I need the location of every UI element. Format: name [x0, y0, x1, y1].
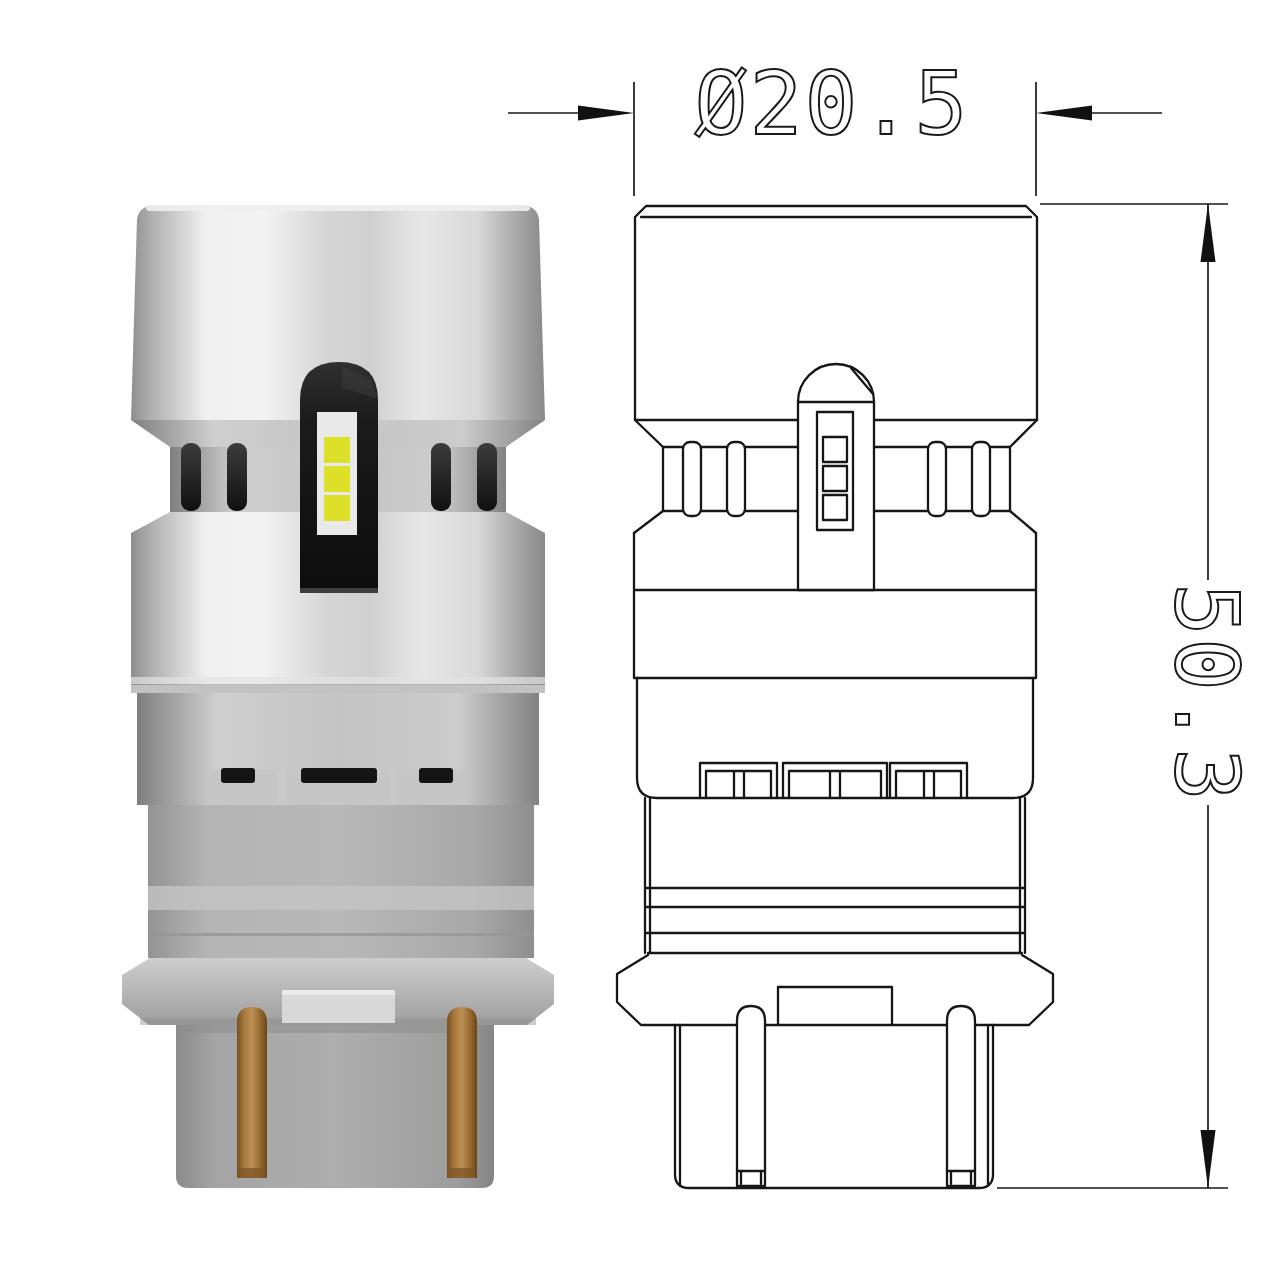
mid-seam-shadow — [131, 684, 545, 693]
drawing-flange-notch — [778, 987, 892, 1025]
mid-seam-highlight — [131, 677, 545, 684]
drawing-boss — [928, 442, 946, 516]
notch-slot — [221, 768, 255, 783]
bulb-technical-drawing — [617, 206, 1053, 1188]
copper-contact-pin — [237, 1007, 267, 1178]
height-label: 50.3 — [1155, 583, 1258, 803]
pin-foot-step — [239, 1168, 265, 1178]
drawing-boss — [683, 442, 701, 516]
drawing-castellation — [700, 763, 777, 798]
drawing-led-tower — [798, 364, 874, 590]
led-chip — [324, 495, 350, 521]
diameter-label: Ø20.5 — [695, 52, 970, 155]
arrow-left-icon — [1036, 106, 1092, 121]
cap-top-rim-highlight — [146, 205, 530, 211]
copper-contact-pin — [447, 1007, 477, 1178]
tower-bottom-edge — [300, 588, 378, 593]
drawing-boss — [972, 442, 990, 516]
diameter-dimension: Ø20.5 — [508, 52, 1162, 196]
vent-slot — [227, 443, 247, 511]
pin-foot-step — [449, 1168, 475, 1178]
drawing-castellation — [890, 763, 967, 798]
drawing-socket-ridges — [645, 888, 1025, 953]
notch-slot — [301, 768, 377, 783]
drawing-contact-key — [947, 1006, 975, 1186]
vent-slot — [431, 443, 451, 511]
arrow-right-icon — [578, 106, 634, 121]
drawing-plug-base — [675, 1025, 993, 1188]
vent-slot — [477, 443, 497, 511]
arrow-up-icon — [1201, 204, 1216, 262]
plug-top-shadow — [176, 1025, 494, 1033]
flange-key-notch-top — [282, 990, 395, 995]
drawing-flange — [617, 955, 1053, 1025]
led-bulb-diagram: Ø20.5 50.3 — [0, 0, 1280, 1280]
drawing-boss — [727, 442, 745, 516]
plastic-seam-band — [148, 886, 534, 910]
vent-slot — [181, 443, 201, 511]
drawing-contact-key — [737, 1006, 765, 1186]
bulb-photo-render — [122, 205, 554, 1188]
drawing-lower-block — [637, 678, 1033, 798]
led-chip — [324, 466, 350, 492]
wedge-plug-base — [176, 1025, 494, 1188]
plastic-seam-line — [148, 933, 534, 936]
notch-slot — [419, 768, 453, 783]
drawing-socket-walls — [645, 798, 1025, 953]
drawing-castellation — [783, 763, 887, 798]
diagram-canvas: Ø20.5 50.3 — [0, 0, 1280, 1280]
led-chip — [324, 437, 350, 463]
arrow-down-icon — [1201, 1130, 1216, 1188]
